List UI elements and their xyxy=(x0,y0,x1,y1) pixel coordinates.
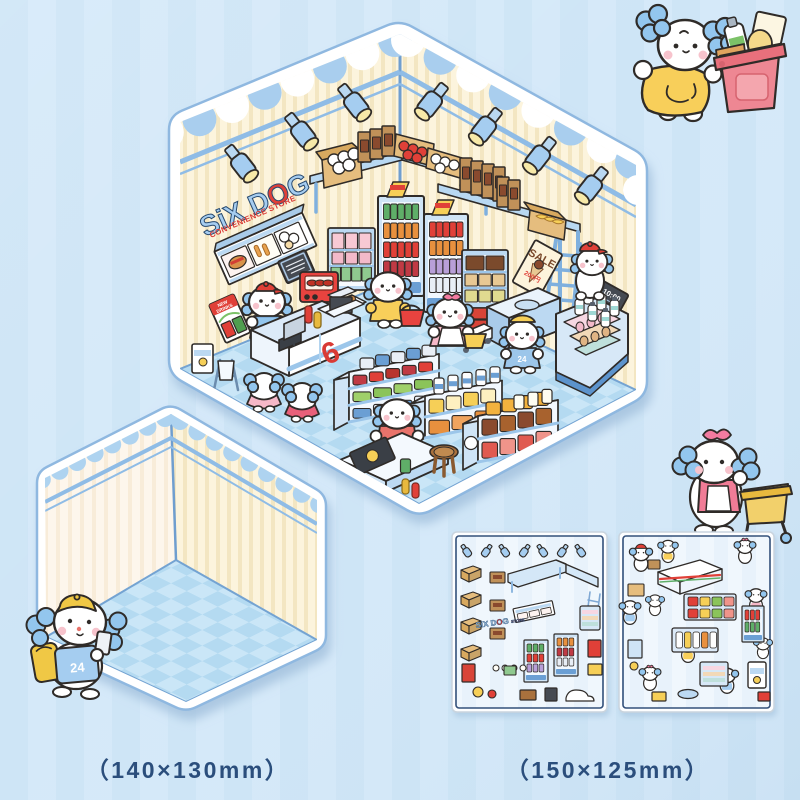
svg-text:（150×125mm）: （150×125mm） xyxy=(506,757,711,783)
svg-text:（140×130mm）: （140×130mm） xyxy=(86,757,291,783)
svg-text:24: 24 xyxy=(69,659,85,675)
svg-text:24: 24 xyxy=(518,355,527,364)
